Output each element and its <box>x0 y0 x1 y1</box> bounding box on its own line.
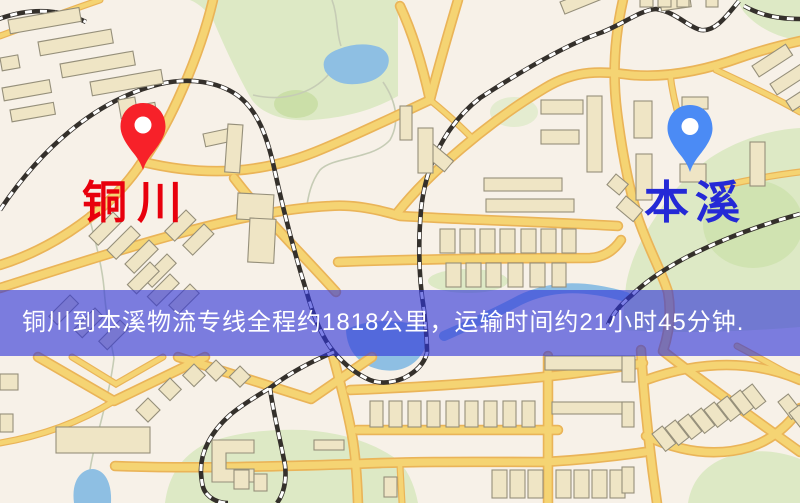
route-info-banner: 铜川到本溪物流专线全程约1818公里，运输时间约21小时45分钟. <box>0 290 800 356</box>
map-background <box>0 0 800 503</box>
origin-city-label: 铜川 <box>82 181 192 226</box>
map-screenshot: 铜川 本溪 铜川到本溪物流专线全程约1818公里，运输时间约21小时45分钟. <box>0 0 800 503</box>
origin-pin-icon[interactable] <box>121 103 166 170</box>
route-info-text: 铜川到本溪物流专线全程约1818公里，运输时间约21小时45分钟. <box>22 309 744 336</box>
destination-city-label: 本溪 <box>644 181 746 226</box>
